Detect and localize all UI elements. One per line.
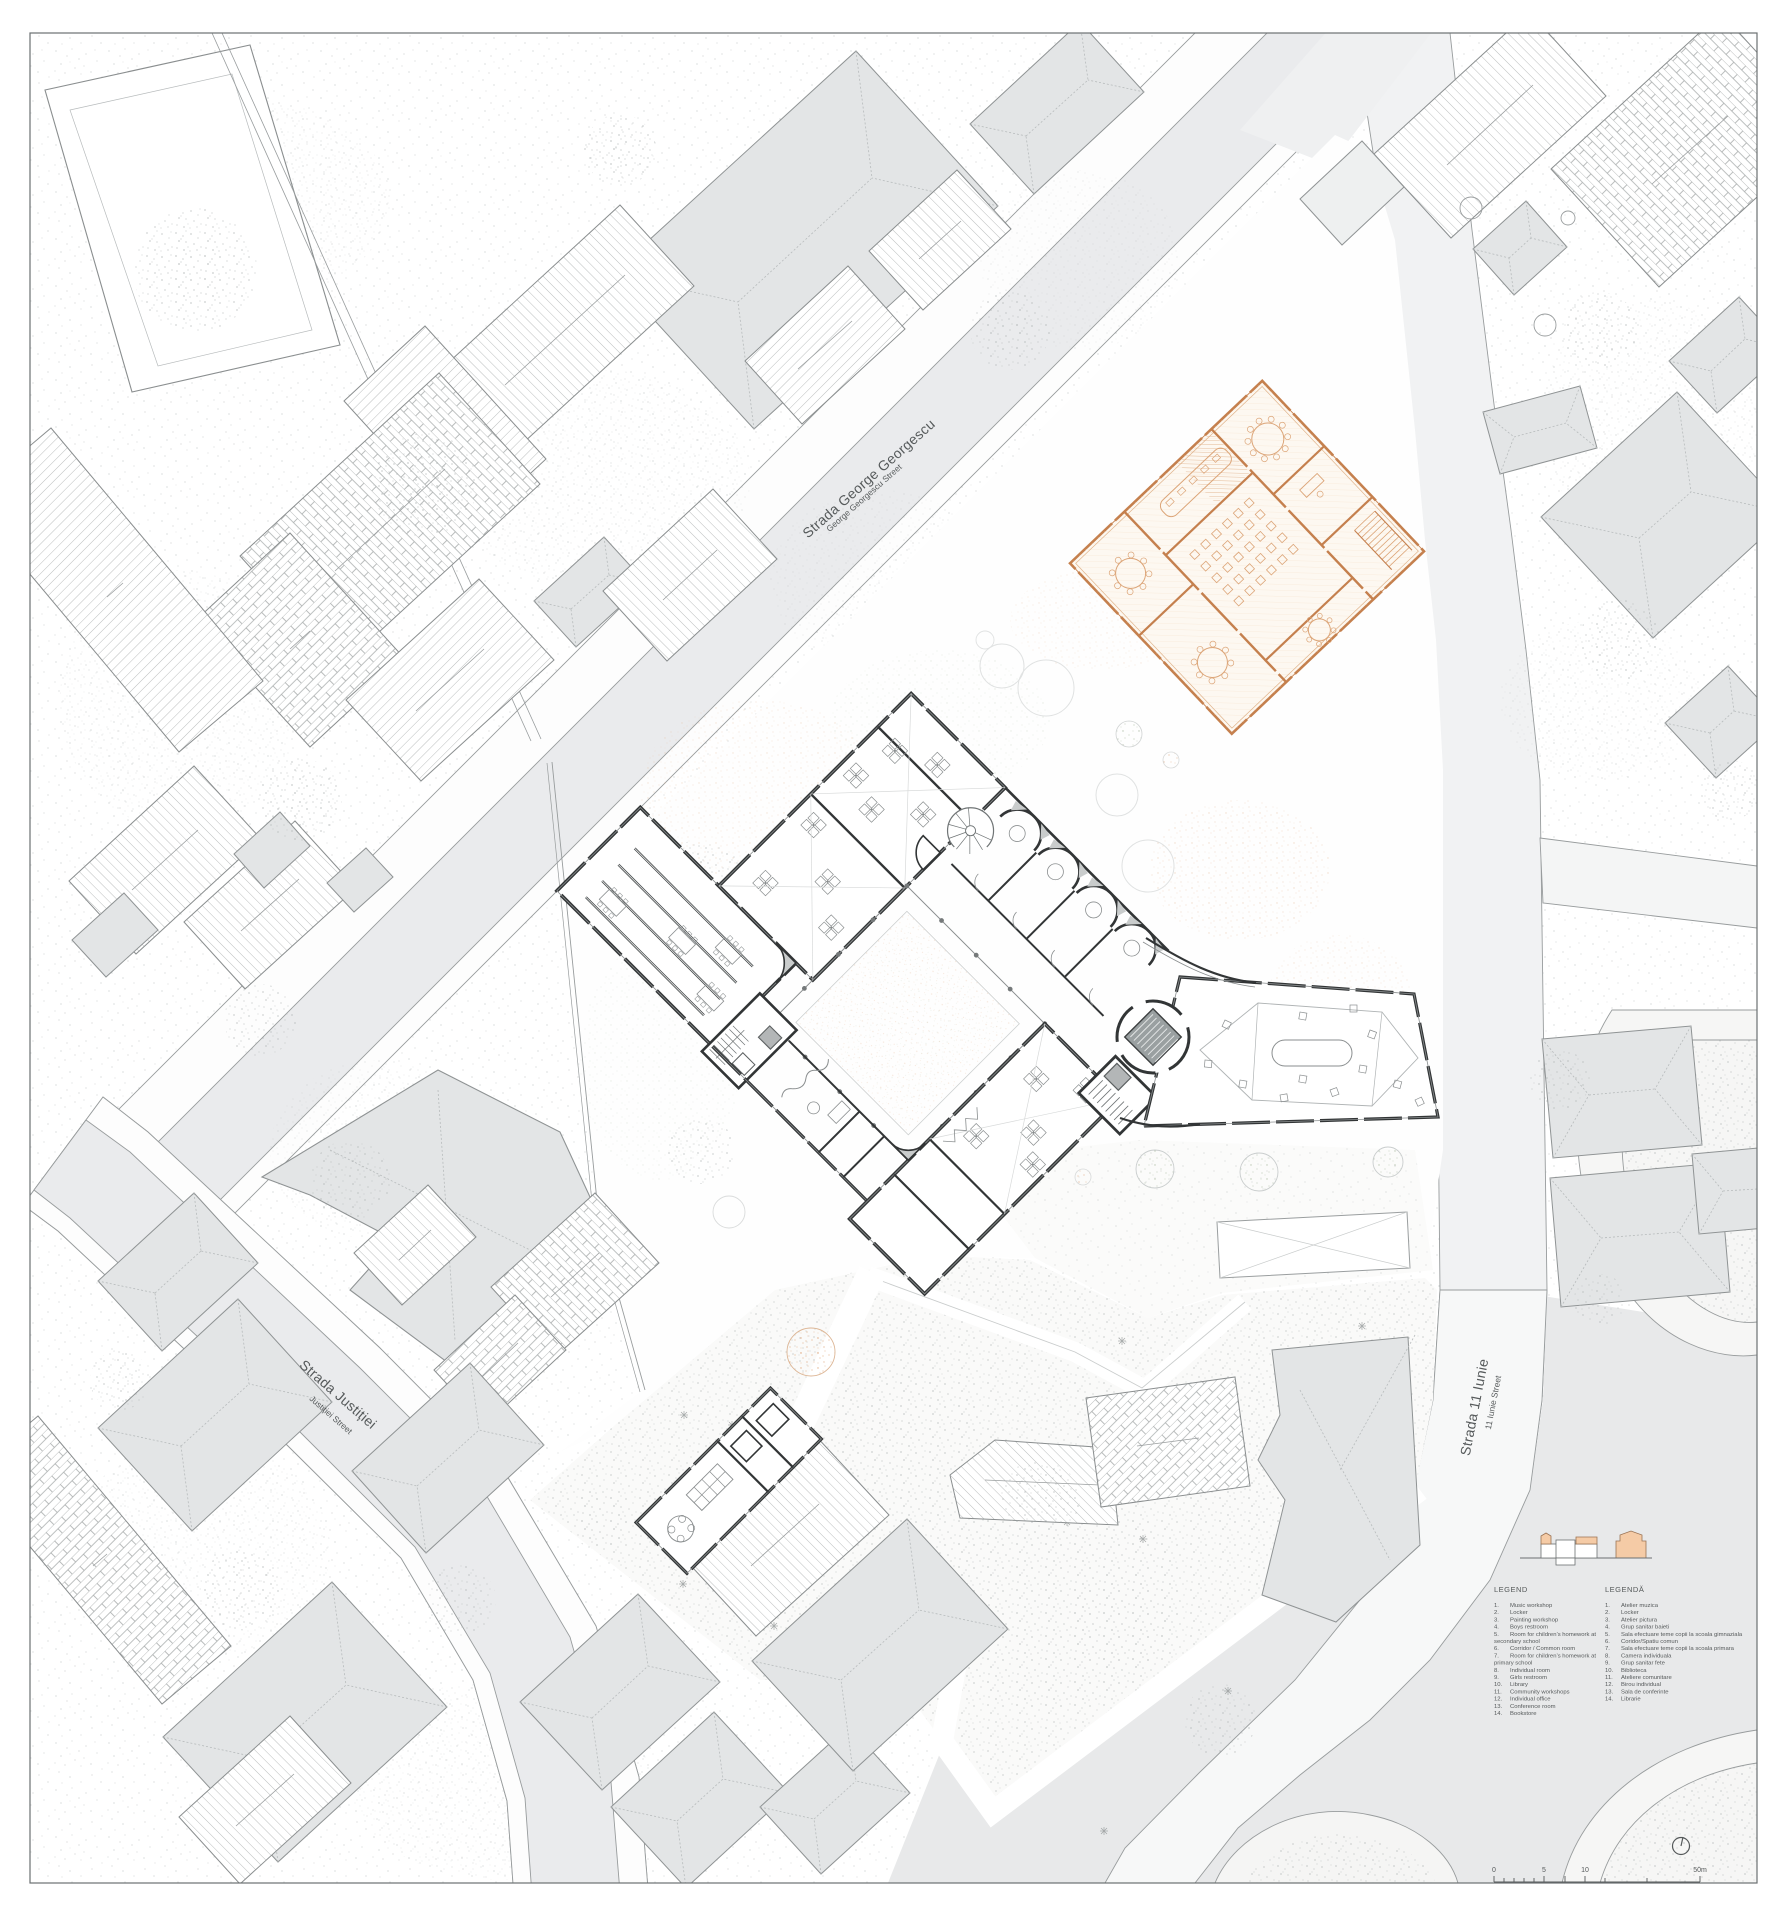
svg-text:12.: 12. xyxy=(1605,1682,1614,1688)
svg-text:Birou individual: Birou individual xyxy=(1621,1682,1661,1688)
svg-text:5.: 5. xyxy=(1494,1632,1499,1638)
svg-text:Biblioteca: Biblioteca xyxy=(1621,1668,1647,1674)
svg-text:Ateliere comunitare: Ateliere comunitare xyxy=(1621,1675,1672,1681)
svg-text:6.: 6. xyxy=(1605,1639,1610,1645)
svg-text:9.: 9. xyxy=(1605,1661,1610,1667)
svg-text:7.: 7. xyxy=(1605,1646,1610,1652)
svg-text:Bookstore: Bookstore xyxy=(1510,1711,1537,1717)
svg-text:3.: 3. xyxy=(1494,1617,1499,1623)
svg-text:8.: 8. xyxy=(1494,1668,1499,1674)
svg-text:8.: 8. xyxy=(1605,1653,1610,1659)
svg-text:LEGEND: LEGEND xyxy=(1494,1585,1528,1594)
svg-text:14.: 14. xyxy=(1605,1697,1614,1703)
svg-text:Coridor/Spatiu comun: Coridor/Spatiu comun xyxy=(1621,1639,1678,1645)
svg-text:1.: 1. xyxy=(1494,1603,1499,1609)
svg-text:Conference room: Conference room xyxy=(1510,1704,1556,1710)
svg-text:Room for children’s homework a: Room for children’s homework at xyxy=(1510,1632,1596,1638)
svg-text:Painting workshop: Painting workshop xyxy=(1510,1617,1559,1623)
svg-text:LEGENDĂ: LEGENDĂ xyxy=(1605,1585,1644,1594)
svg-text:5: 5 xyxy=(1542,1867,1546,1874)
svg-text:Room for children’s homework a: Room for children’s homework at xyxy=(1510,1653,1596,1659)
svg-text:Sala de conferinte: Sala de conferinte xyxy=(1621,1689,1669,1695)
svg-text:5.: 5. xyxy=(1605,1632,1610,1638)
svg-text:Corridor / Common room: Corridor / Common room xyxy=(1510,1646,1575,1652)
svg-text:Library: Library xyxy=(1510,1682,1528,1688)
svg-text:9.: 9. xyxy=(1494,1675,1499,1681)
svg-text:secondary school: secondary school xyxy=(1494,1639,1540,1645)
svg-text:4.: 4. xyxy=(1605,1625,1610,1631)
svg-text:Locker: Locker xyxy=(1510,1610,1528,1616)
svg-text:Music workshop: Music workshop xyxy=(1510,1603,1553,1609)
svg-text:Individual office: Individual office xyxy=(1510,1697,1551,1703)
svg-text:Sala efectuare teme copii la s: Sala efectuare teme copii la scoala gimn… xyxy=(1621,1632,1743,1638)
svg-text:Grup sanitar fete: Grup sanitar fete xyxy=(1621,1661,1666,1667)
svg-text:Grup sanitar baieti: Grup sanitar baieti xyxy=(1621,1625,1669,1631)
svg-text:primary school: primary school xyxy=(1494,1661,1532,1667)
svg-text:10: 10 xyxy=(1581,1867,1589,1874)
svg-text:11.: 11. xyxy=(1605,1675,1613,1681)
svg-text:4.: 4. xyxy=(1494,1625,1499,1631)
svg-text:6.: 6. xyxy=(1494,1646,1499,1652)
svg-text:3.: 3. xyxy=(1605,1617,1610,1623)
svg-text:2.: 2. xyxy=(1494,1610,1499,1616)
svg-text:10.: 10. xyxy=(1494,1682,1503,1688)
svg-text:1.: 1. xyxy=(1605,1603,1610,1609)
svg-text:Individual room: Individual room xyxy=(1510,1668,1550,1674)
svg-text:11.: 11. xyxy=(1494,1689,1502,1695)
svg-text:13.: 13. xyxy=(1494,1704,1503,1710)
svg-text:12.: 12. xyxy=(1494,1697,1503,1703)
svg-text:Atelier pictura: Atelier pictura xyxy=(1621,1617,1658,1623)
svg-text:Camera individuala: Camera individuala xyxy=(1621,1653,1672,1659)
svg-text:50m: 50m xyxy=(1693,1867,1707,1874)
svg-text:13.: 13. xyxy=(1605,1689,1614,1695)
svg-text:Girls restroom: Girls restroom xyxy=(1510,1675,1547,1681)
svg-text:Librarie: Librarie xyxy=(1621,1697,1641,1703)
svg-text:Locker: Locker xyxy=(1621,1610,1639,1616)
svg-text:2.: 2. xyxy=(1605,1610,1610,1616)
svg-text:Boys restroom: Boys restroom xyxy=(1510,1625,1548,1631)
svg-text:Sala efectuare teme copii la s: Sala efectuare teme copii la scoala prim… xyxy=(1621,1646,1735,1652)
svg-text:Atelier muzica: Atelier muzica xyxy=(1621,1603,1659,1609)
svg-text:14.: 14. xyxy=(1494,1711,1503,1717)
svg-text:10.: 10. xyxy=(1605,1668,1614,1674)
svg-text:Community workshops: Community workshops xyxy=(1510,1689,1570,1695)
svg-text:0: 0 xyxy=(1492,1867,1496,1874)
svg-text:7.: 7. xyxy=(1494,1653,1499,1659)
